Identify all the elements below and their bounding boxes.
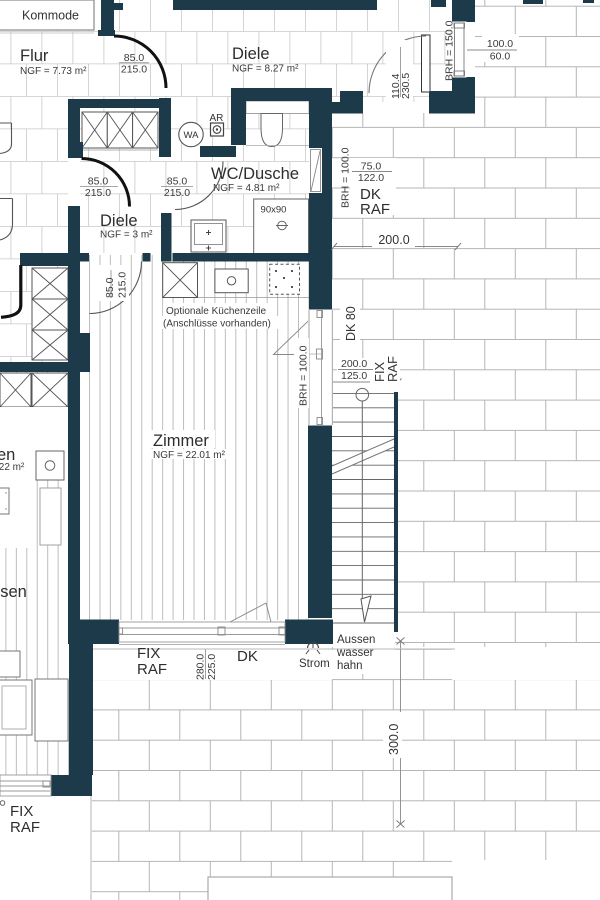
svg-text:hahn: hahn: [337, 660, 363, 672]
svg-text:85.0: 85.0: [104, 277, 116, 298]
svg-text:RAF: RAF: [10, 819, 40, 836]
svg-text:Aussen: Aussen: [337, 634, 375, 646]
svg-text:NGF = 4.81 m²: NGF = 4.81 m²: [213, 183, 280, 194]
svg-text:85.0: 85.0: [88, 176, 109, 188]
svg-text:215.0: 215.0: [164, 187, 190, 199]
svg-text:RAF: RAF: [137, 661, 167, 678]
svg-text:FIX: FIX: [137, 645, 160, 662]
svg-text:(Anschlüsse vorhanden): (Anschlüsse vorhanden): [163, 319, 271, 330]
svg-text:300.0: 300.0: [387, 724, 401, 755]
svg-text:BRH = 150.0: BRH = 150.0: [444, 20, 456, 81]
svg-text:100.0: 100.0: [487, 38, 513, 50]
svg-text:75.0: 75.0: [361, 161, 382, 173]
svg-text:200.0: 200.0: [378, 233, 409, 247]
svg-text:Diele: Diele: [232, 45, 270, 63]
svg-text:215.0: 215.0: [117, 272, 129, 298]
svg-text:280.0: 280.0: [195, 654, 207, 680]
svg-text:90x90: 90x90: [261, 205, 287, 216]
svg-text:Strom: Strom: [299, 658, 330, 670]
svg-text:NGF = 7.73 m²: NGF = 7.73 m²: [20, 66, 87, 77]
svg-text:225.0: 225.0: [206, 654, 218, 680]
svg-text:NGF = 22.01 m²: NGF = 22.01 m²: [153, 450, 226, 461]
svg-text:WC/Dusche: WC/Dusche: [211, 165, 299, 183]
svg-text:ssen: ssen: [0, 583, 27, 601]
svg-text:215.0: 215.0: [85, 187, 111, 199]
svg-text:AR: AR: [210, 113, 224, 124]
svg-text:Optionale Küchenzeile: Optionale Küchenzeile: [166, 306, 267, 317]
svg-text:Kommode: Kommode: [22, 9, 79, 23]
svg-text:WA: WA: [184, 130, 200, 141]
svg-text:215.0: 215.0: [121, 64, 147, 76]
svg-text:Zimmer: Zimmer: [153, 432, 209, 450]
svg-text:85.0: 85.0: [124, 52, 145, 64]
svg-text:.22 m²: .22 m²: [0, 462, 25, 473]
svg-text:NGF = 3 m²: NGF = 3 m²: [100, 230, 153, 241]
svg-text:125.0: 125.0: [341, 370, 367, 382]
svg-text:NGF = 8.27 m²: NGF = 8.27 m²: [232, 64, 299, 75]
svg-text:BRH = 100.0: BRH = 100.0: [298, 345, 310, 406]
svg-text:FIX: FIX: [10, 803, 33, 820]
svg-text:BRH = 100.0: BRH = 100.0: [340, 147, 352, 208]
svg-text:200.0: 200.0: [341, 358, 367, 370]
svg-text:230.5: 230.5: [400, 73, 412, 99]
svg-text:Diele: Diele: [100, 212, 138, 230]
svg-text:DK: DK: [237, 648, 258, 665]
svg-text:60.0: 60.0: [490, 51, 511, 63]
svg-text:DK 80: DK 80: [344, 306, 358, 341]
svg-text:RAF: RAF: [360, 201, 390, 218]
svg-text:85.0: 85.0: [167, 176, 188, 188]
svg-text:wasser: wasser: [336, 647, 374, 659]
svg-text:RAF: RAF: [385, 356, 400, 382]
svg-text:122.0: 122.0: [358, 172, 384, 184]
svg-text:Flur: Flur: [20, 47, 49, 65]
